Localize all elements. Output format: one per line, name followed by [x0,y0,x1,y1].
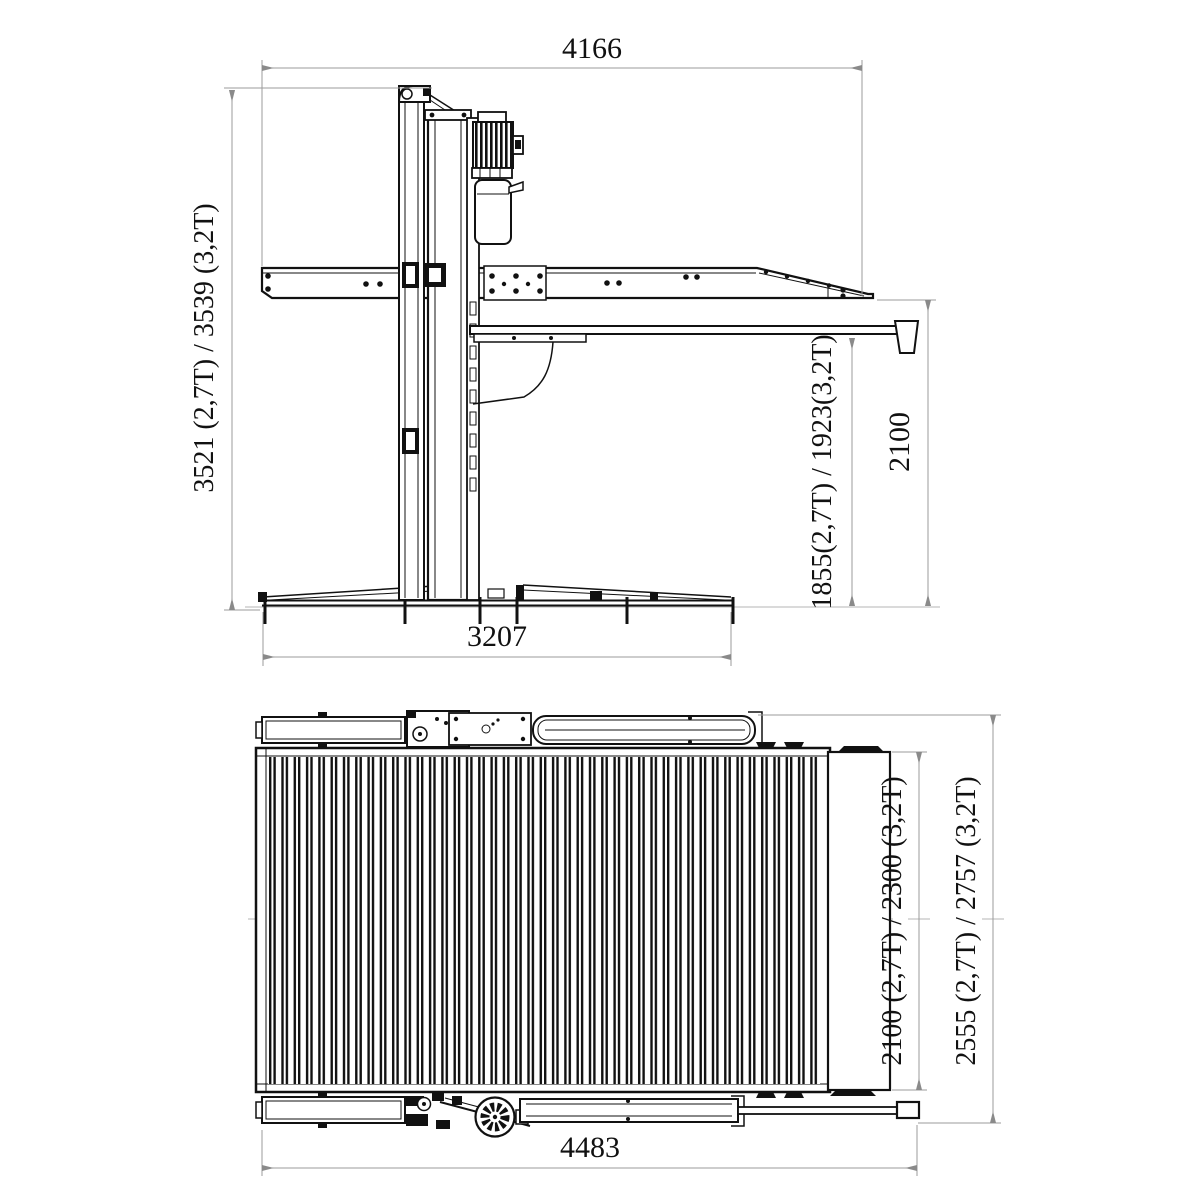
dimension-label-base-length: 3207 [467,620,527,653]
dimension-label-overall-height: 3521 (2,7T) / 3539 (3,2T) [189,203,220,492]
deck-ribs [268,757,820,1084]
dimension-label-platform-width: 2100 (2,7T) / 2300 (3,2T) [877,776,908,1065]
top-rail-assembly [256,711,762,748]
platform-deck [256,742,890,1098]
dimension-label-arm-height: 2100 [883,412,916,472]
dimension-label-overall-length: 4483 [560,1131,620,1164]
lift-column [399,86,479,600]
hydraulic-tank [475,180,511,244]
motor-icon [473,122,513,168]
dimension-label-top-width: 4166 [562,32,622,65]
plan-view: 2100 (2,7T) / 2300 (3,2T) 2555 (2,7T) / … [248,711,1004,1176]
arm-end-block [897,1102,919,1118]
dimension-label-overall-width: 2555 (2,7T) / 2757 (3,2T) [951,776,982,1065]
motor-cap [478,112,506,122]
wheel-stop-block [895,321,918,353]
top-pulley [402,89,412,99]
extension-arm [738,1107,898,1114]
drawing-canvas: 4166 3521 (2,7T) / 3539 (3,2T) 1855(2,7T… [0,0,1200,1200]
parking-lift-technical-drawing: 4166 3521 (2,7T) / 3539 (3,2T) 1855(2,7T… [0,0,1200,1200]
dimension-label-under-platform-clearance: 1855(2,7T) / 1923(3,2T) [807,334,838,609]
